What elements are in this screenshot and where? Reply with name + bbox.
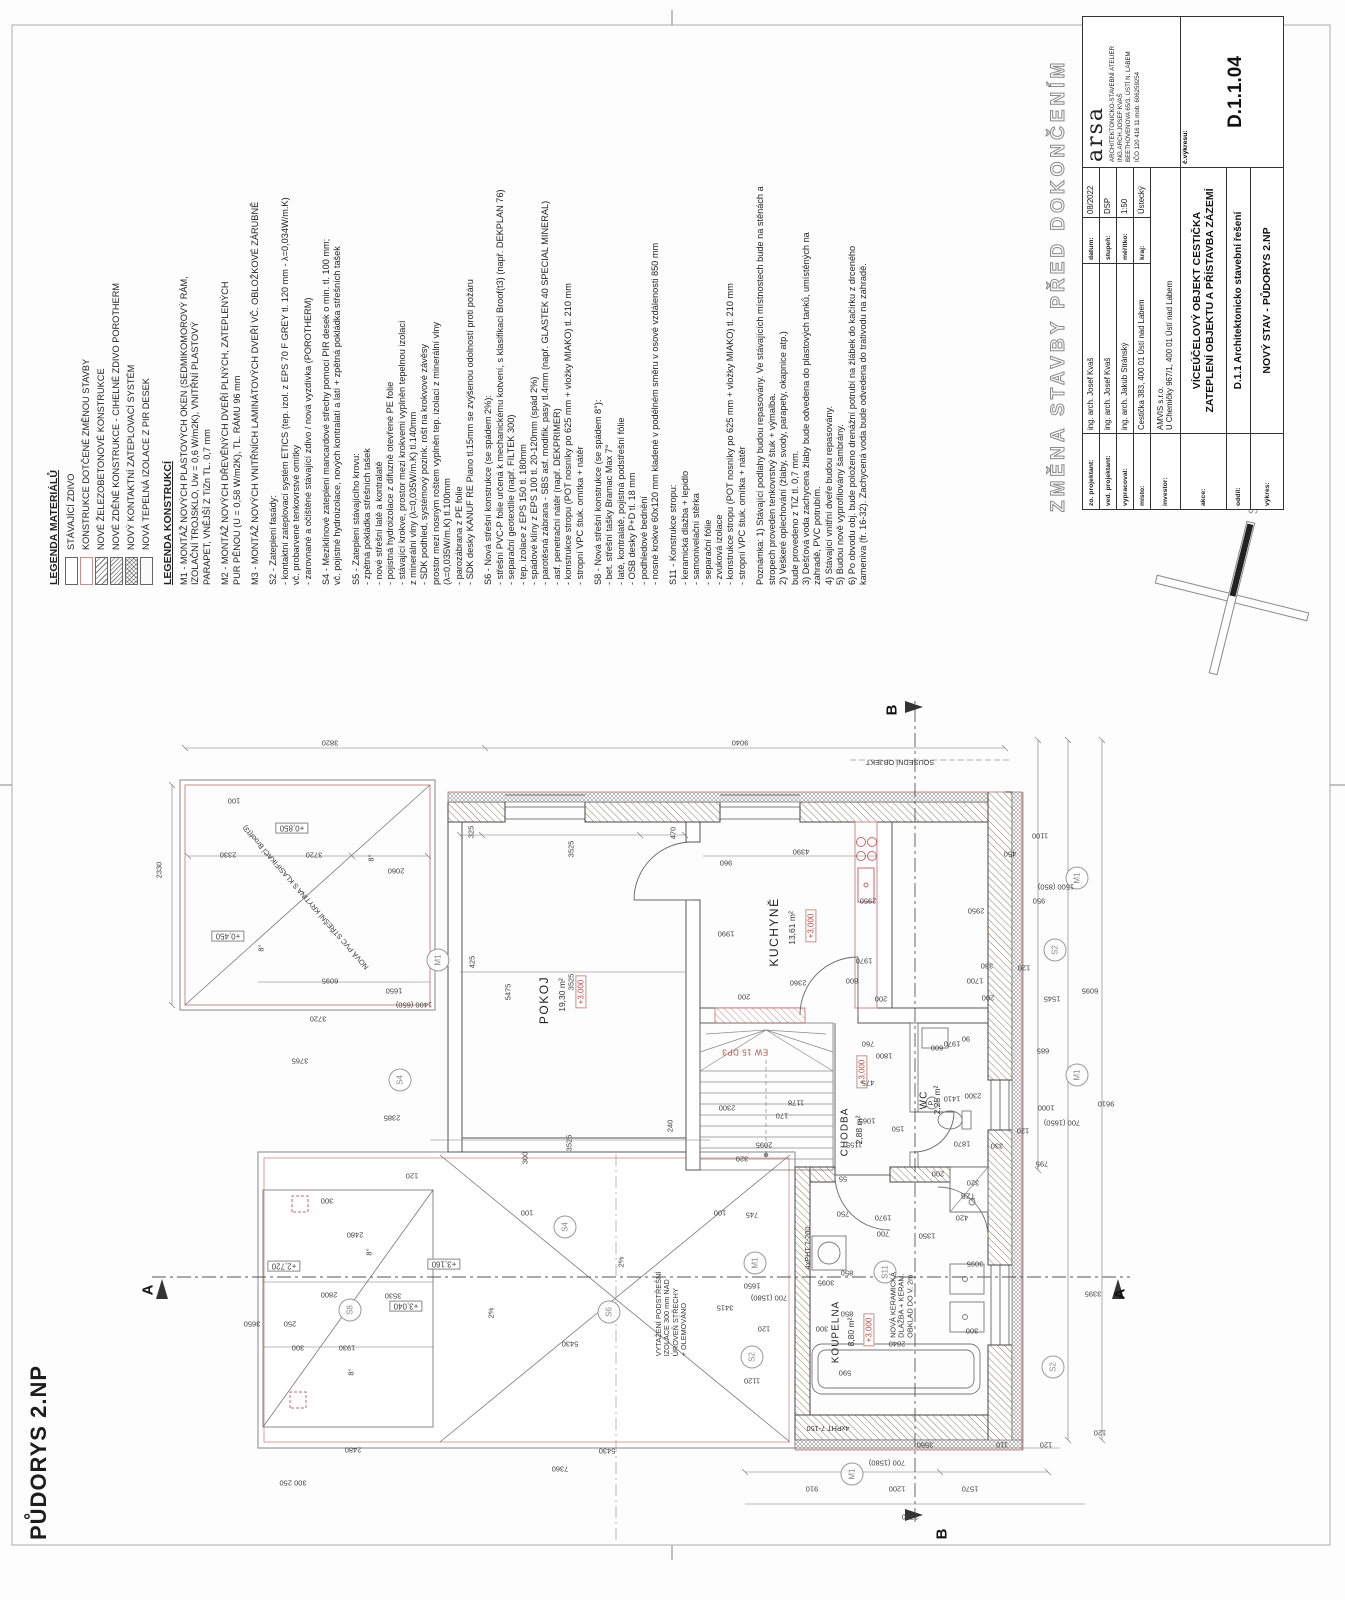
tb-label: výkres:	[1251, 433, 1283, 509]
office-stamp: arsa ARCHITEKTONICKO-STAVEBNÍ ATELIER IN…	[1083, 17, 1181, 167]
legend-construction-block: S4 - Meziklínové zateplení mancardové st…	[321, 17, 344, 585]
drawing-title: NOVÝ STAV - PŮDORYS 2.NP	[1251, 167, 1283, 433]
legend-material-item: NOVÝ KONTAKTNÍ ZATEPLOVACÍ SYSTÉM	[125, 17, 137, 585]
tb-value: Cestička 383, 400 01 Ústí nad Labem	[1134, 263, 1151, 433]
tb-label: ved. projektant:	[1100, 433, 1117, 509]
tb-label: vypracoval:	[1117, 433, 1134, 509]
tb-value: ing. arch. Josef Kvaš	[1100, 263, 1117, 433]
tb-label: kraj:	[1134, 217, 1151, 263]
diag2-hatch-swatch	[110, 557, 123, 585]
tb-label: zo. projektant:	[1083, 433, 1100, 509]
legend-material-item: NOVÁ TEPELNÁ IZOLACE Z PIR DESEK	[140, 17, 152, 585]
legend-construction-block: M1 - MONTÁŽ NOVÝCH PLASTOVÝCH OKEN (SEDM…	[179, 17, 213, 585]
legend-construction-block: S11 - Konstrukce stropu: - keramická dla…	[668, 17, 748, 585]
legend-constructions-title: LEGENDA KONSTRUKCÍ	[162, 17, 174, 585]
title-block: zo. projektant: ing. arch. Josef Kvaš da…	[1082, 16, 1284, 510]
legend-materials-items: STÁVAJÍCÍ ZDIVOKONSTRUKCE DOTČENÉ ZMĚNOU…	[65, 17, 152, 585]
legend-material-label: NOVÝ KONTAKTNÍ ZATEPLOVACÍ SYSTÉM	[126, 365, 136, 550]
drawing-project-name: VÍCEÚČELOVÝ OBJEKT CESTIČKA ZATEPLENÍ OB…	[1181, 167, 1227, 433]
legend-construction-block: Poznámka: 1) Stávající podlahy budou rep…	[755, 17, 869, 585]
legend-material-label: KONSTRUKCE DOTČENÉ ZMĚNOU STAVBY	[81, 359, 91, 550]
tb-label: stupeň:	[1100, 217, 1117, 263]
legend-material-item: NOVÉ ZDĚNÉ KONSTRUKCE - CIHELNÉ ZDIVO PO…	[110, 17, 122, 585]
screenshot-viewport: POKOJ19,30 m²+3,000KUCHYNĚ13,61 m²+3,000…	[0, 0, 1345, 1600]
legend-material-item: NOVÉ ŽELEZOBETONOVÉ KONSTRUKCE	[95, 17, 107, 585]
legend-material-label: NOVÉ ŽELEZOBETONOVÉ KONSTRUKCE	[96, 368, 106, 550]
stamp-header: ZMĚNA STAVBY PŘED DOKONČENÍM	[1048, 12, 1070, 512]
legend-construction-block: M2 - MONTÁŽ NOVÝCH DŘEVĚNÝCH DVEŘÍ PLNÝC…	[220, 17, 243, 585]
plain-hatch-swatch	[65, 557, 78, 585]
office-logo: arsa	[1085, 106, 1107, 162]
drawing-number-cell: č.výkresu: D.1.1.04	[1181, 17, 1283, 167]
page-title: PŮDORYS 2.NP	[26, 1365, 52, 1540]
tb-value: DSP	[1100, 167, 1117, 217]
legend-construction-block: S5 - Zateplení stávajícího krovu: - zpět…	[351, 17, 476, 585]
legend-panel: LEGENDA MATERIÁLŮ STÁVAJÍCÍ ZDIVOKONSTRU…	[48, 17, 876, 585]
tb-value: Ústecký	[1134, 167, 1151, 217]
drawing-sheet: POKOJ19,30 m²+3,000KUCHYNĚ13,61 m²+3,000…	[0, 0, 1345, 1600]
tb-label: datum:	[1083, 217, 1100, 263]
tb-value: 1:50	[1117, 167, 1134, 217]
tb-label: investor:	[1151, 433, 1181, 509]
red-hatch-swatch	[80, 557, 93, 585]
tb-value: 08/2022	[1083, 167, 1100, 217]
drawing-number: D.1.1.04	[1225, 56, 1247, 128]
legend-constructions-blocks: M1 - MONTÁŽ NOVÝCH PLASTOVÝCH OKEN (SEDM…	[179, 17, 869, 585]
tb-label: místo:	[1134, 433, 1151, 509]
legend-material-item: KONSTRUKCE DOTČENÉ ZMĚNOU STAVBY	[80, 17, 92, 585]
legend-construction-block: S8 - Nová střešní konstrukce (se spádem …	[593, 17, 661, 585]
tb-value: ing. arch. Josef Kvaš	[1083, 263, 1100, 433]
drawing-section: D.1.1 Architektonicko stavební řešení	[1227, 167, 1251, 433]
legend-construction-block: S2 - Zateplení fasády: - kontaktní zatep…	[268, 17, 314, 585]
diag-hatch-swatch	[95, 557, 108, 585]
tb-label: měřítko:	[1117, 217, 1134, 263]
tb-label: č.výkresu:	[1182, 20, 1189, 164]
tb-value: ing. arch. Jakub Stránský	[1117, 263, 1134, 433]
legend-material-label: NOVÉ ZDĚNÉ KONSTRUKCE - CIHELNÉ ZDIVO PO…	[111, 283, 121, 550]
legend-construction-block: M3 - MONTÁŽ NOVÝCH VNITŘNÍCH LAMINÁTOVÝC…	[250, 17, 261, 585]
light-hatch-swatch	[140, 557, 153, 585]
legend-construction-block: S6 - Nová střešní konstrukce (se spádem …	[483, 17, 586, 585]
tb-value: AMVIS s.r.o. U Chemičky 967/1, 400 01 Ús…	[1151, 167, 1181, 433]
legend-material-label: NOVÁ TEPELNÁ IZOLACE Z PIR DESEK	[141, 378, 151, 550]
cross-hatch-swatch	[125, 557, 138, 585]
office-address: ARCHITEKTONICKO-STAVEBNÍ ATELIER ING.ARC…	[1109, 46, 1142, 162]
tb-label: oddíl:	[1227, 433, 1251, 509]
tb-label: akce:	[1181, 433, 1227, 509]
legend-materials-title: LEGENDA MATERIÁLŮ	[48, 17, 60, 585]
legend-material-label: STÁVAJÍCÍ ZDIVO	[66, 474, 76, 550]
legend-material-item: STÁVAJÍCÍ ZDIVO	[65, 17, 77, 585]
